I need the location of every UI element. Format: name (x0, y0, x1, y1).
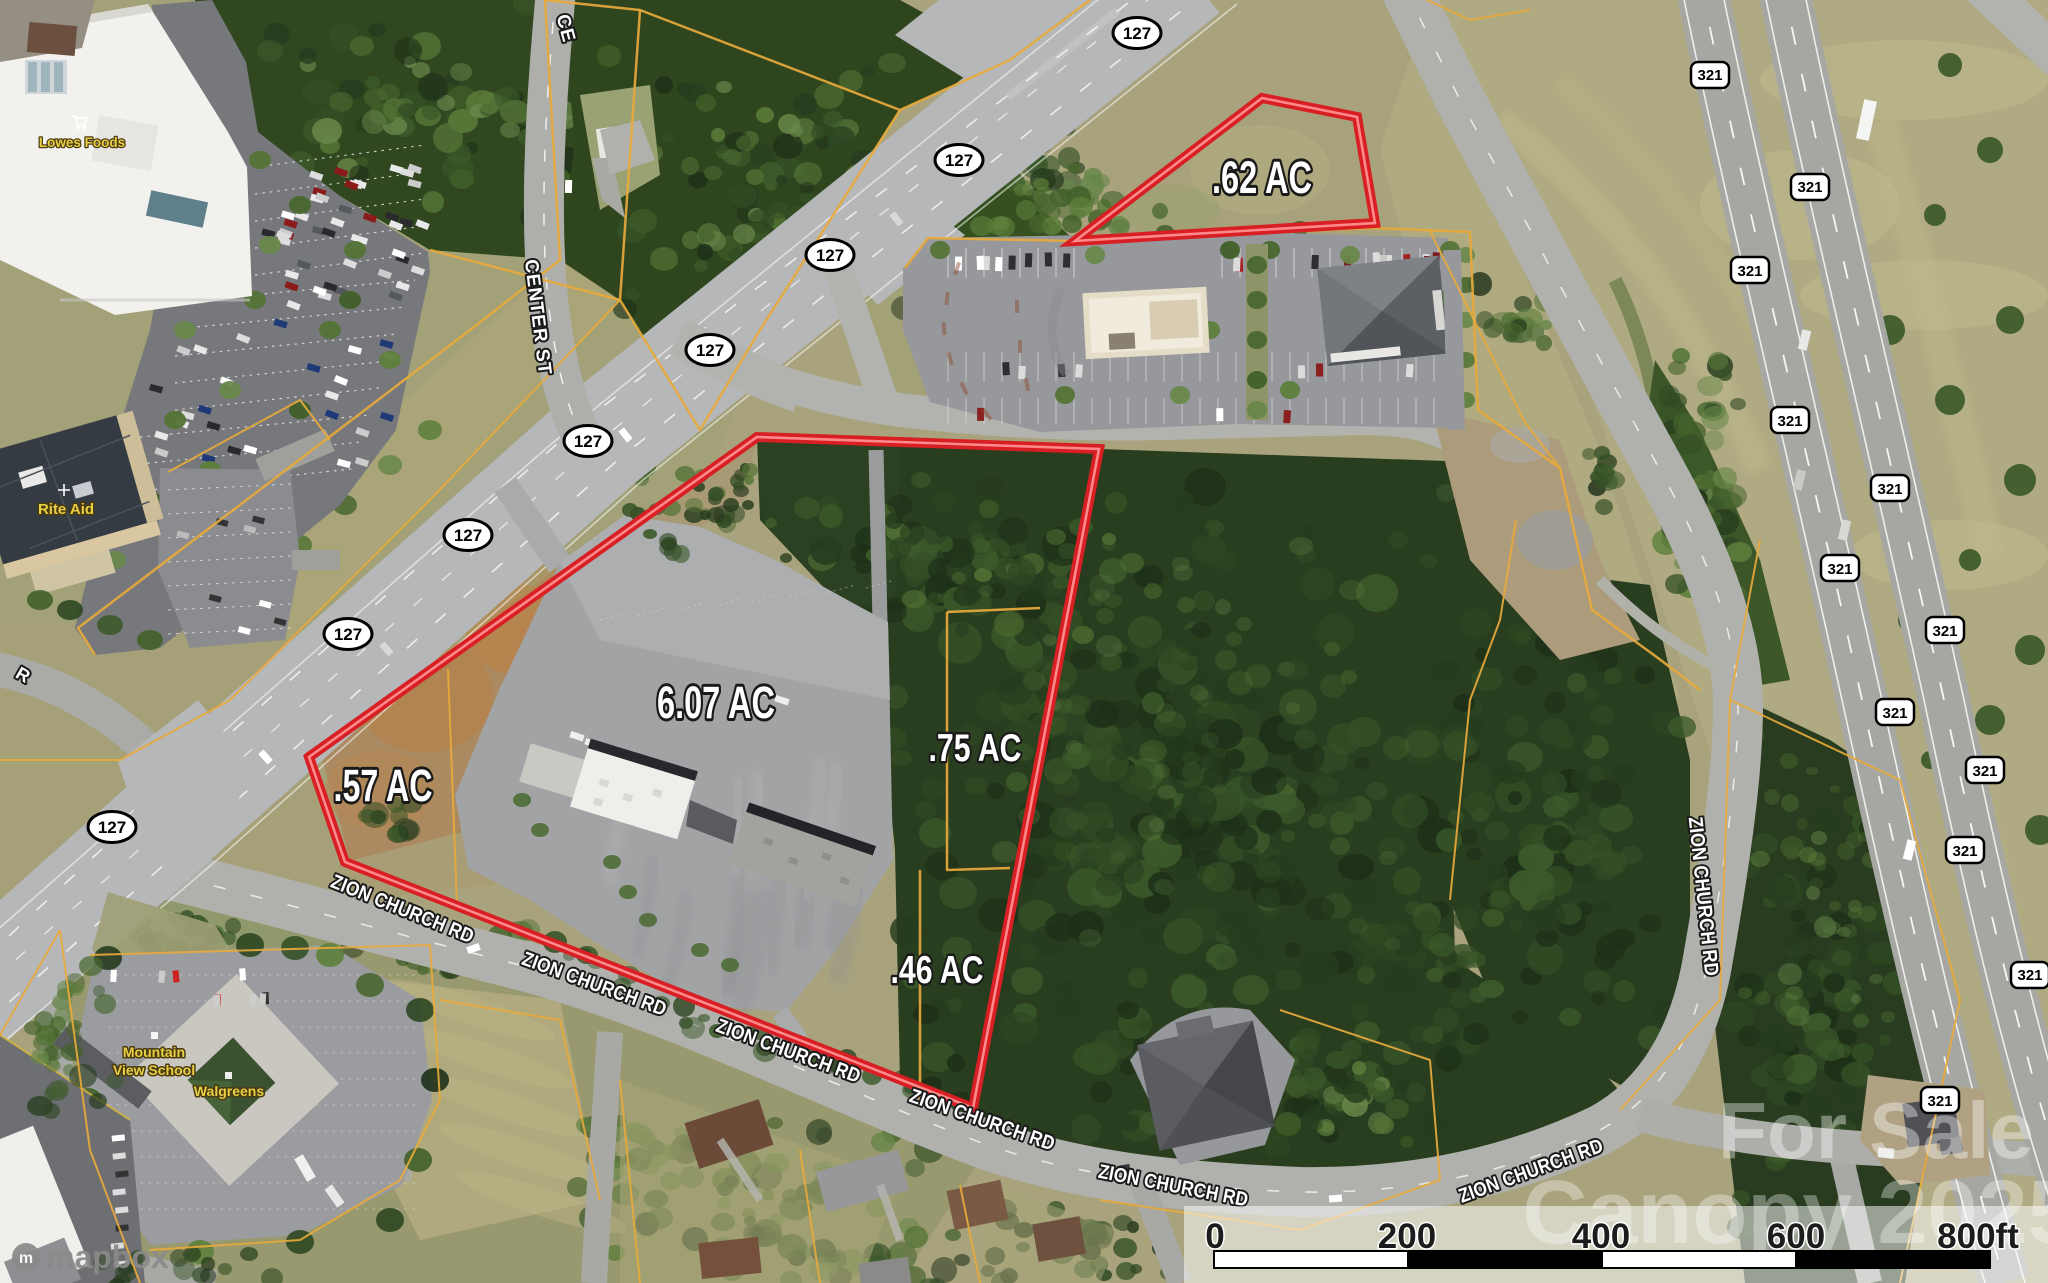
svg-text:m: m (19, 1250, 33, 1267)
svg-text:Rite Aid: Rite Aid (38, 501, 94, 518)
svg-text:127: 127 (816, 246, 844, 265)
svg-text:Lowes Foods: Lowes Foods (39, 135, 125, 150)
svg-text:For Sale: For Sale (1718, 1086, 2034, 1175)
svg-text:321: 321 (1697, 67, 1722, 84)
svg-text:321: 321 (1827, 561, 1852, 578)
svg-text:0: 0 (1205, 1217, 1224, 1256)
svg-text:127: 127 (574, 432, 602, 451)
svg-text:127: 127 (454, 526, 482, 545)
svg-text:600: 600 (1767, 1217, 1825, 1256)
svg-text:321: 321 (1932, 623, 1957, 640)
svg-text:View School: View School (113, 1062, 195, 1078)
svg-text:127: 127 (98, 818, 126, 837)
svg-text:.62 AC: .62 AC (1212, 152, 1312, 203)
svg-text:321: 321 (1797, 179, 1822, 196)
svg-text:321: 321 (1972, 763, 1997, 780)
svg-text:321: 321 (2017, 967, 2042, 984)
svg-text:Walgreens: Walgreens (194, 1083, 264, 1099)
svg-text:127: 127 (1123, 24, 1151, 43)
svg-text:321: 321 (1877, 481, 1902, 498)
svg-text:321: 321 (1952, 843, 1977, 860)
svg-text:127: 127 (696, 341, 724, 360)
svg-text:400: 400 (1572, 1217, 1630, 1256)
svg-text:127: 127 (334, 625, 362, 644)
svg-text:200: 200 (1378, 1217, 1436, 1256)
svg-text:Mountain: Mountain (123, 1044, 185, 1060)
svg-text:mapbox: mapbox (46, 1239, 169, 1275)
svg-text:321: 321 (1777, 413, 1802, 430)
svg-text:6.07 AC: 6.07 AC (657, 677, 775, 728)
svg-text:321: 321 (1737, 263, 1762, 280)
svg-text:.46 AC: .46 AC (891, 949, 984, 992)
svg-text:321: 321 (1882, 705, 1907, 722)
svg-text:.57 AC: .57 AC (334, 760, 433, 811)
svg-text:800ft: 800ft (1937, 1217, 2019, 1256)
svg-text:.75 AC: .75 AC (929, 727, 1022, 770)
svg-text:127: 127 (945, 151, 973, 170)
